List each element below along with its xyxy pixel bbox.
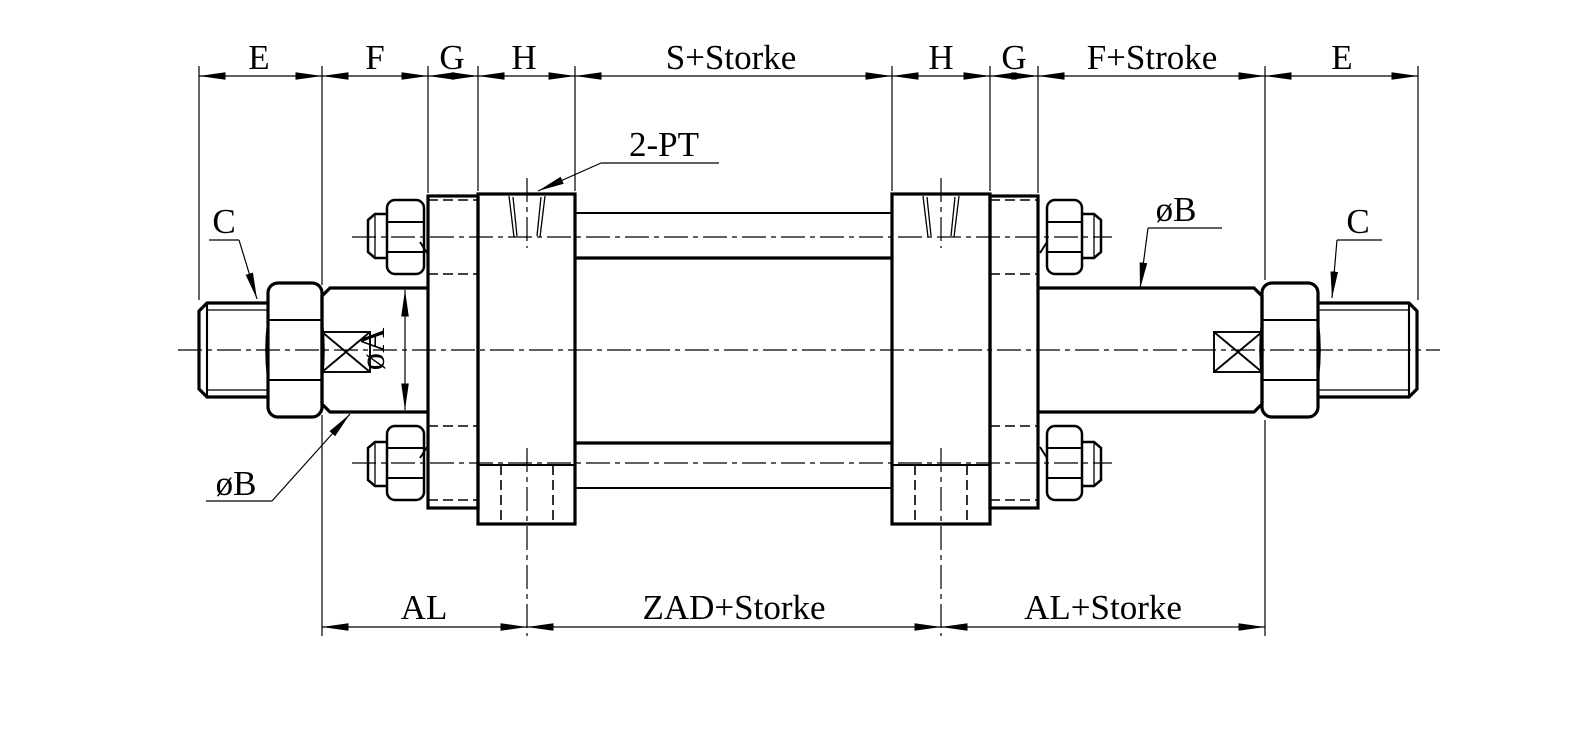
dim-label-e-left: E xyxy=(248,38,269,77)
technical-drawing-canvas: E F G H S+Storke H G F+Stroke E AL ZAD+S… xyxy=(0,0,1569,740)
callout-dia-a: øA xyxy=(353,327,392,371)
leader-c-left xyxy=(239,240,257,299)
dim-label-zad-storke: ZAD+Storke xyxy=(642,588,825,627)
dim-label-al: AL xyxy=(401,588,448,627)
callout-port-label: 2-PT xyxy=(629,125,699,164)
tie-rod-tip xyxy=(368,214,387,258)
callout-c-left: C xyxy=(212,202,235,241)
dim-label-e-right: E xyxy=(1331,38,1352,77)
dim-label-h-left: H xyxy=(511,38,536,77)
cylinder-head-right xyxy=(892,194,990,524)
dim-label-f-left: F xyxy=(365,38,384,77)
gland-flange-left xyxy=(428,196,478,508)
rod-diameter-dimension: øA xyxy=(353,290,405,410)
dim-label-al-storke: AL+Storke xyxy=(1024,588,1182,627)
tie-rod-tip xyxy=(1082,214,1101,258)
tie-rod-tip xyxy=(1082,442,1101,486)
callout-dia-b-right: øB xyxy=(1156,190,1197,229)
tie-rod-tip xyxy=(368,442,387,486)
flange-left-outline xyxy=(428,196,478,508)
piston-rod-right xyxy=(1038,288,1262,412)
dim-label-g-right: G xyxy=(1001,38,1026,77)
callout-c-right: C xyxy=(1346,202,1369,241)
head-left-outline xyxy=(478,194,575,524)
technical-drawing-page: E F G H S+Storke H G F+Stroke E AL ZAD+S… xyxy=(0,0,1569,740)
dim-label-h-right: H xyxy=(928,38,953,77)
head-right-outline xyxy=(892,194,990,524)
dimension-lines-top: E F G H S+Storke H G F+Stroke E xyxy=(199,38,1418,77)
leader-dia-b-right xyxy=(1140,228,1148,289)
leader-dia-b-left xyxy=(272,414,350,501)
dim-label-g-left: G xyxy=(439,38,464,77)
callout-dia-b-left: øB xyxy=(216,464,257,503)
leaders: 2-PT C C øB øB xyxy=(206,125,1382,503)
dimension-lines-bottom: AL ZAD+Storke AL+Storke xyxy=(322,588,1265,627)
dim-label-s-storke: S+Storke xyxy=(666,38,797,77)
gland-flange-right xyxy=(990,196,1038,508)
dim-label-f-stroke: F+Stroke xyxy=(1087,38,1218,77)
leader-port xyxy=(538,163,601,191)
cylinder-head-left xyxy=(478,194,575,524)
rod-right-outline xyxy=(1038,288,1262,412)
flange-right-outline xyxy=(990,196,1038,508)
leader-c-right xyxy=(1332,240,1337,298)
